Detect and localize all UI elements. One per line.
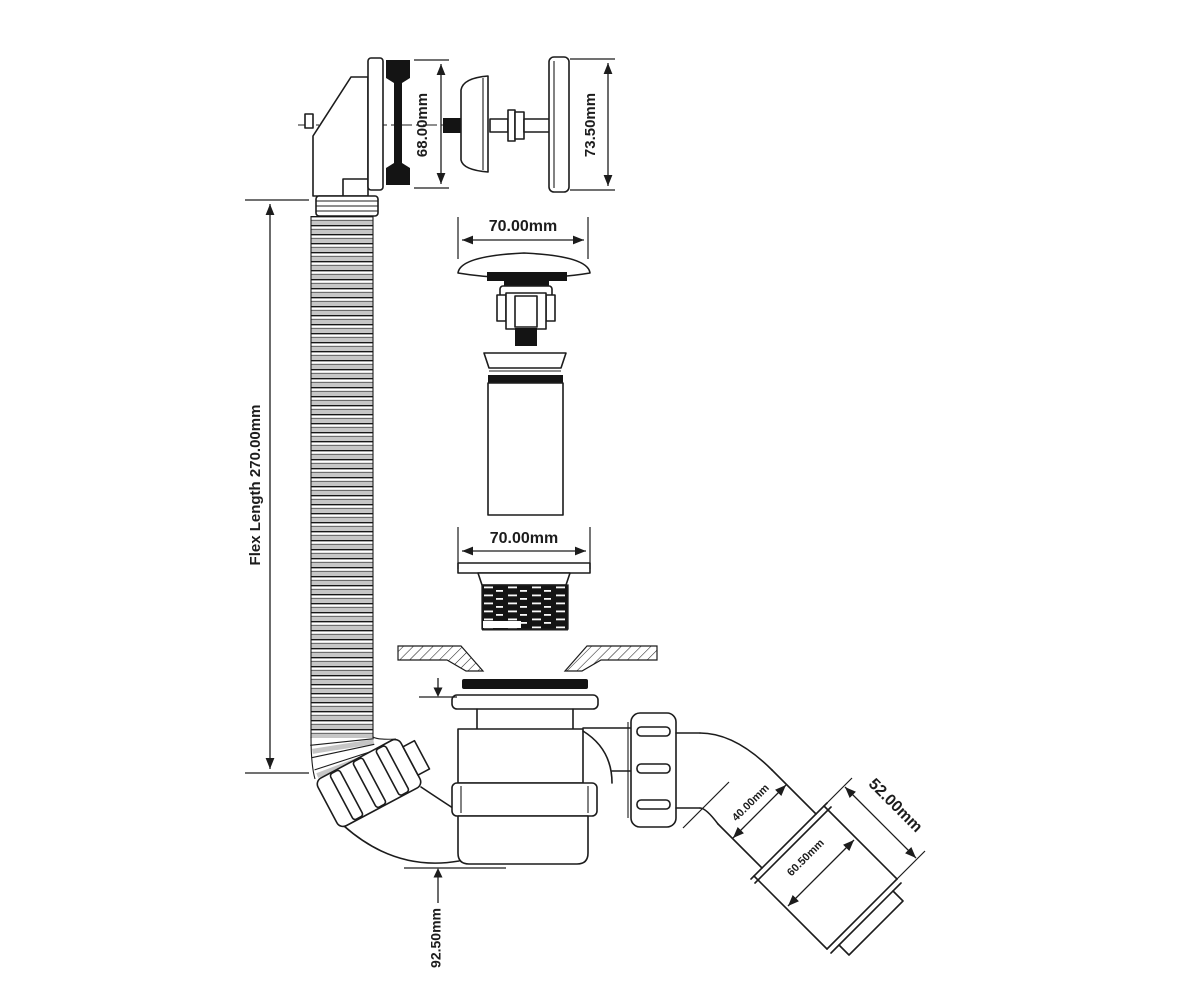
outlet-elbow-inner <box>700 808 718 824</box>
dim-label-outlet-length: 52.00mm <box>865 776 925 836</box>
trap-flange-plate <box>452 695 598 709</box>
plug-seal <box>487 272 567 281</box>
bend-left-edge <box>311 737 315 779</box>
trap-ring-nut <box>452 783 597 816</box>
adaptor-end-spigot <box>839 891 903 955</box>
overflow-stem-thread <box>443 118 461 133</box>
overflow-elbow-lug <box>305 114 313 128</box>
dim-label-flange: 70.00mm <box>490 530 559 547</box>
waste-flange-thread-relief <box>483 621 521 628</box>
overflow-elbow <box>305 58 410 216</box>
overflow-flange-plate <box>368 58 383 190</box>
screw-shank <box>524 119 550 132</box>
waste-flange-neck <box>478 573 570 585</box>
outlet-nut <box>628 713 676 827</box>
screw-shaft <box>490 119 508 132</box>
overflow-face-assembly <box>443 57 569 192</box>
bend-right-edge <box>373 737 396 739</box>
dim-label-overflow-gasket: 68.00mm <box>414 93 431 157</box>
tail-tube <box>484 353 566 515</box>
plug-stem-inner <box>515 296 537 327</box>
bath-cross-section <box>398 646 657 671</box>
tail-tube-oring <box>488 375 563 383</box>
bath-gasket <box>462 679 588 689</box>
plug-tab-right <box>546 295 555 321</box>
overflow-cover-plate <box>549 57 569 192</box>
plug-tab-left <box>497 295 506 321</box>
bath-waste-diagram: 68.00mm 73.50mm Flex Length 270.00mm 70.… <box>0 0 1200 1000</box>
outlet-elbow-outer <box>700 733 772 770</box>
adaptor-tube <box>754 806 903 955</box>
overflow-bezel-cup <box>461 76 488 172</box>
adaptor-end-line-1 <box>827 879 897 949</box>
dim-label-flex-length: Flex Length 270.00mm <box>247 405 264 566</box>
tail-tube-rim <box>484 353 566 368</box>
dim-label-outlet-bore: 40.00mm <box>730 782 772 824</box>
trap-body <box>452 695 631 864</box>
adaptor-lower-edge <box>754 876 827 949</box>
tail-tube-body <box>488 383 563 515</box>
overflow-gasket <box>386 60 410 185</box>
bath-waste-diagram-page: 68.00mm 73.50mm Flex Length 270.00mm 70.… <box>0 0 1200 1000</box>
dim-label-overflow-plate: 73.50mm <box>582 93 599 157</box>
dim-datum-outlet <box>683 782 729 828</box>
bath-plug <box>458 253 590 346</box>
adaptor-end-line-2 <box>831 883 901 953</box>
screw-nut <box>515 112 524 139</box>
adaptor-upper-edge <box>824 806 897 879</box>
waste-flange-plate <box>458 563 590 573</box>
waste-flange <box>458 563 590 630</box>
plug-stem-tip <box>515 328 537 346</box>
overflow-elbow-body <box>313 77 368 196</box>
bath-section-left <box>398 646 483 671</box>
trap-shoulder <box>583 731 612 783</box>
trap-upper-body <box>458 729 583 783</box>
trap-lower-body <box>458 816 588 864</box>
screw-washer <box>508 110 515 141</box>
dim-label-plug: 70.00mm <box>489 218 558 235</box>
hose-elbow-outer <box>344 826 459 863</box>
flex-hose <box>310 216 396 782</box>
flex-hose-ribs <box>311 216 373 738</box>
dim-label-trap-height: 92.50mm <box>428 908 444 968</box>
bath-section-right <box>565 646 657 671</box>
